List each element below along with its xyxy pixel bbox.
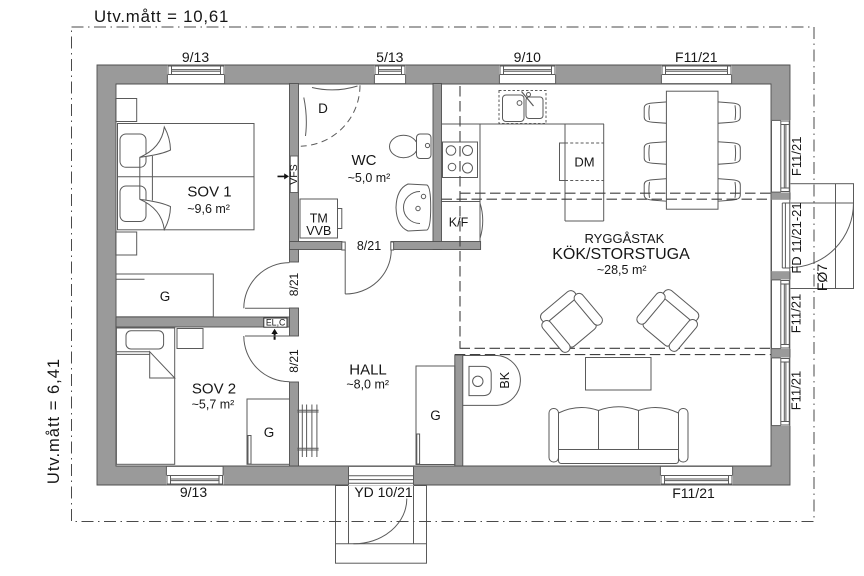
svg-text:F11/21: F11/21 xyxy=(675,49,718,65)
svg-text:WC: WC xyxy=(352,152,377,169)
svg-text:KÖK/STORSTUGA: KÖK/STORSTUGA xyxy=(552,245,690,263)
svg-text:Utv.mått = 6,41: Utv.mått = 6,41 xyxy=(45,358,63,484)
svg-text:8/21: 8/21 xyxy=(287,272,301,296)
svg-text:FD 11/21-21: FD 11/21-21 xyxy=(789,202,804,273)
svg-text:F11/21: F11/21 xyxy=(788,371,803,411)
svg-text:8/21: 8/21 xyxy=(357,239,381,253)
svg-text:SOV 2: SOV 2 xyxy=(192,380,236,397)
svg-text:Utv.mått = 10,61: Utv.mått = 10,61 xyxy=(94,7,229,26)
svg-text:G: G xyxy=(264,425,275,440)
svg-text:~28,5 m²: ~28,5 m² xyxy=(597,263,647,277)
svg-text:YD 10/21: YD 10/21 xyxy=(354,484,413,500)
svg-text:5/13: 5/13 xyxy=(376,49,403,65)
svg-text:F11/21: F11/21 xyxy=(672,485,715,501)
svg-text:DM: DM xyxy=(574,155,594,170)
svg-text:FØ7: FØ7 xyxy=(814,264,830,291)
svg-text:~9,6 m²: ~9,6 m² xyxy=(187,202,230,216)
svg-text:D: D xyxy=(318,101,328,116)
svg-text:9/13: 9/13 xyxy=(180,484,207,500)
svg-text:HALL: HALL xyxy=(349,361,387,378)
svg-text:8/21: 8/21 xyxy=(287,349,301,373)
svg-text:~8,0 m²: ~8,0 m² xyxy=(346,378,389,392)
svg-text:VFS: VFS xyxy=(288,164,300,184)
svg-text:F11/21: F11/21 xyxy=(789,137,804,177)
svg-text:EL,C: EL,C xyxy=(266,318,286,328)
svg-text:9/13: 9/13 xyxy=(182,49,209,65)
svg-text:G: G xyxy=(430,408,441,423)
svg-text:~5,7 m²: ~5,7 m² xyxy=(192,398,235,412)
svg-text:F11/21: F11/21 xyxy=(788,294,803,334)
svg-text:K/F: K/F xyxy=(449,216,469,230)
svg-text:VVB: VVB xyxy=(306,224,331,238)
svg-text:BK: BK xyxy=(498,371,512,388)
svg-text:9/10: 9/10 xyxy=(514,49,541,65)
svg-text:G: G xyxy=(160,289,171,304)
svg-text:SOV 1: SOV 1 xyxy=(187,184,231,201)
svg-text:~5,0 m²: ~5,0 m² xyxy=(348,171,391,185)
svg-text:RYGGÅSTAK: RYGGÅSTAK xyxy=(585,231,665,246)
